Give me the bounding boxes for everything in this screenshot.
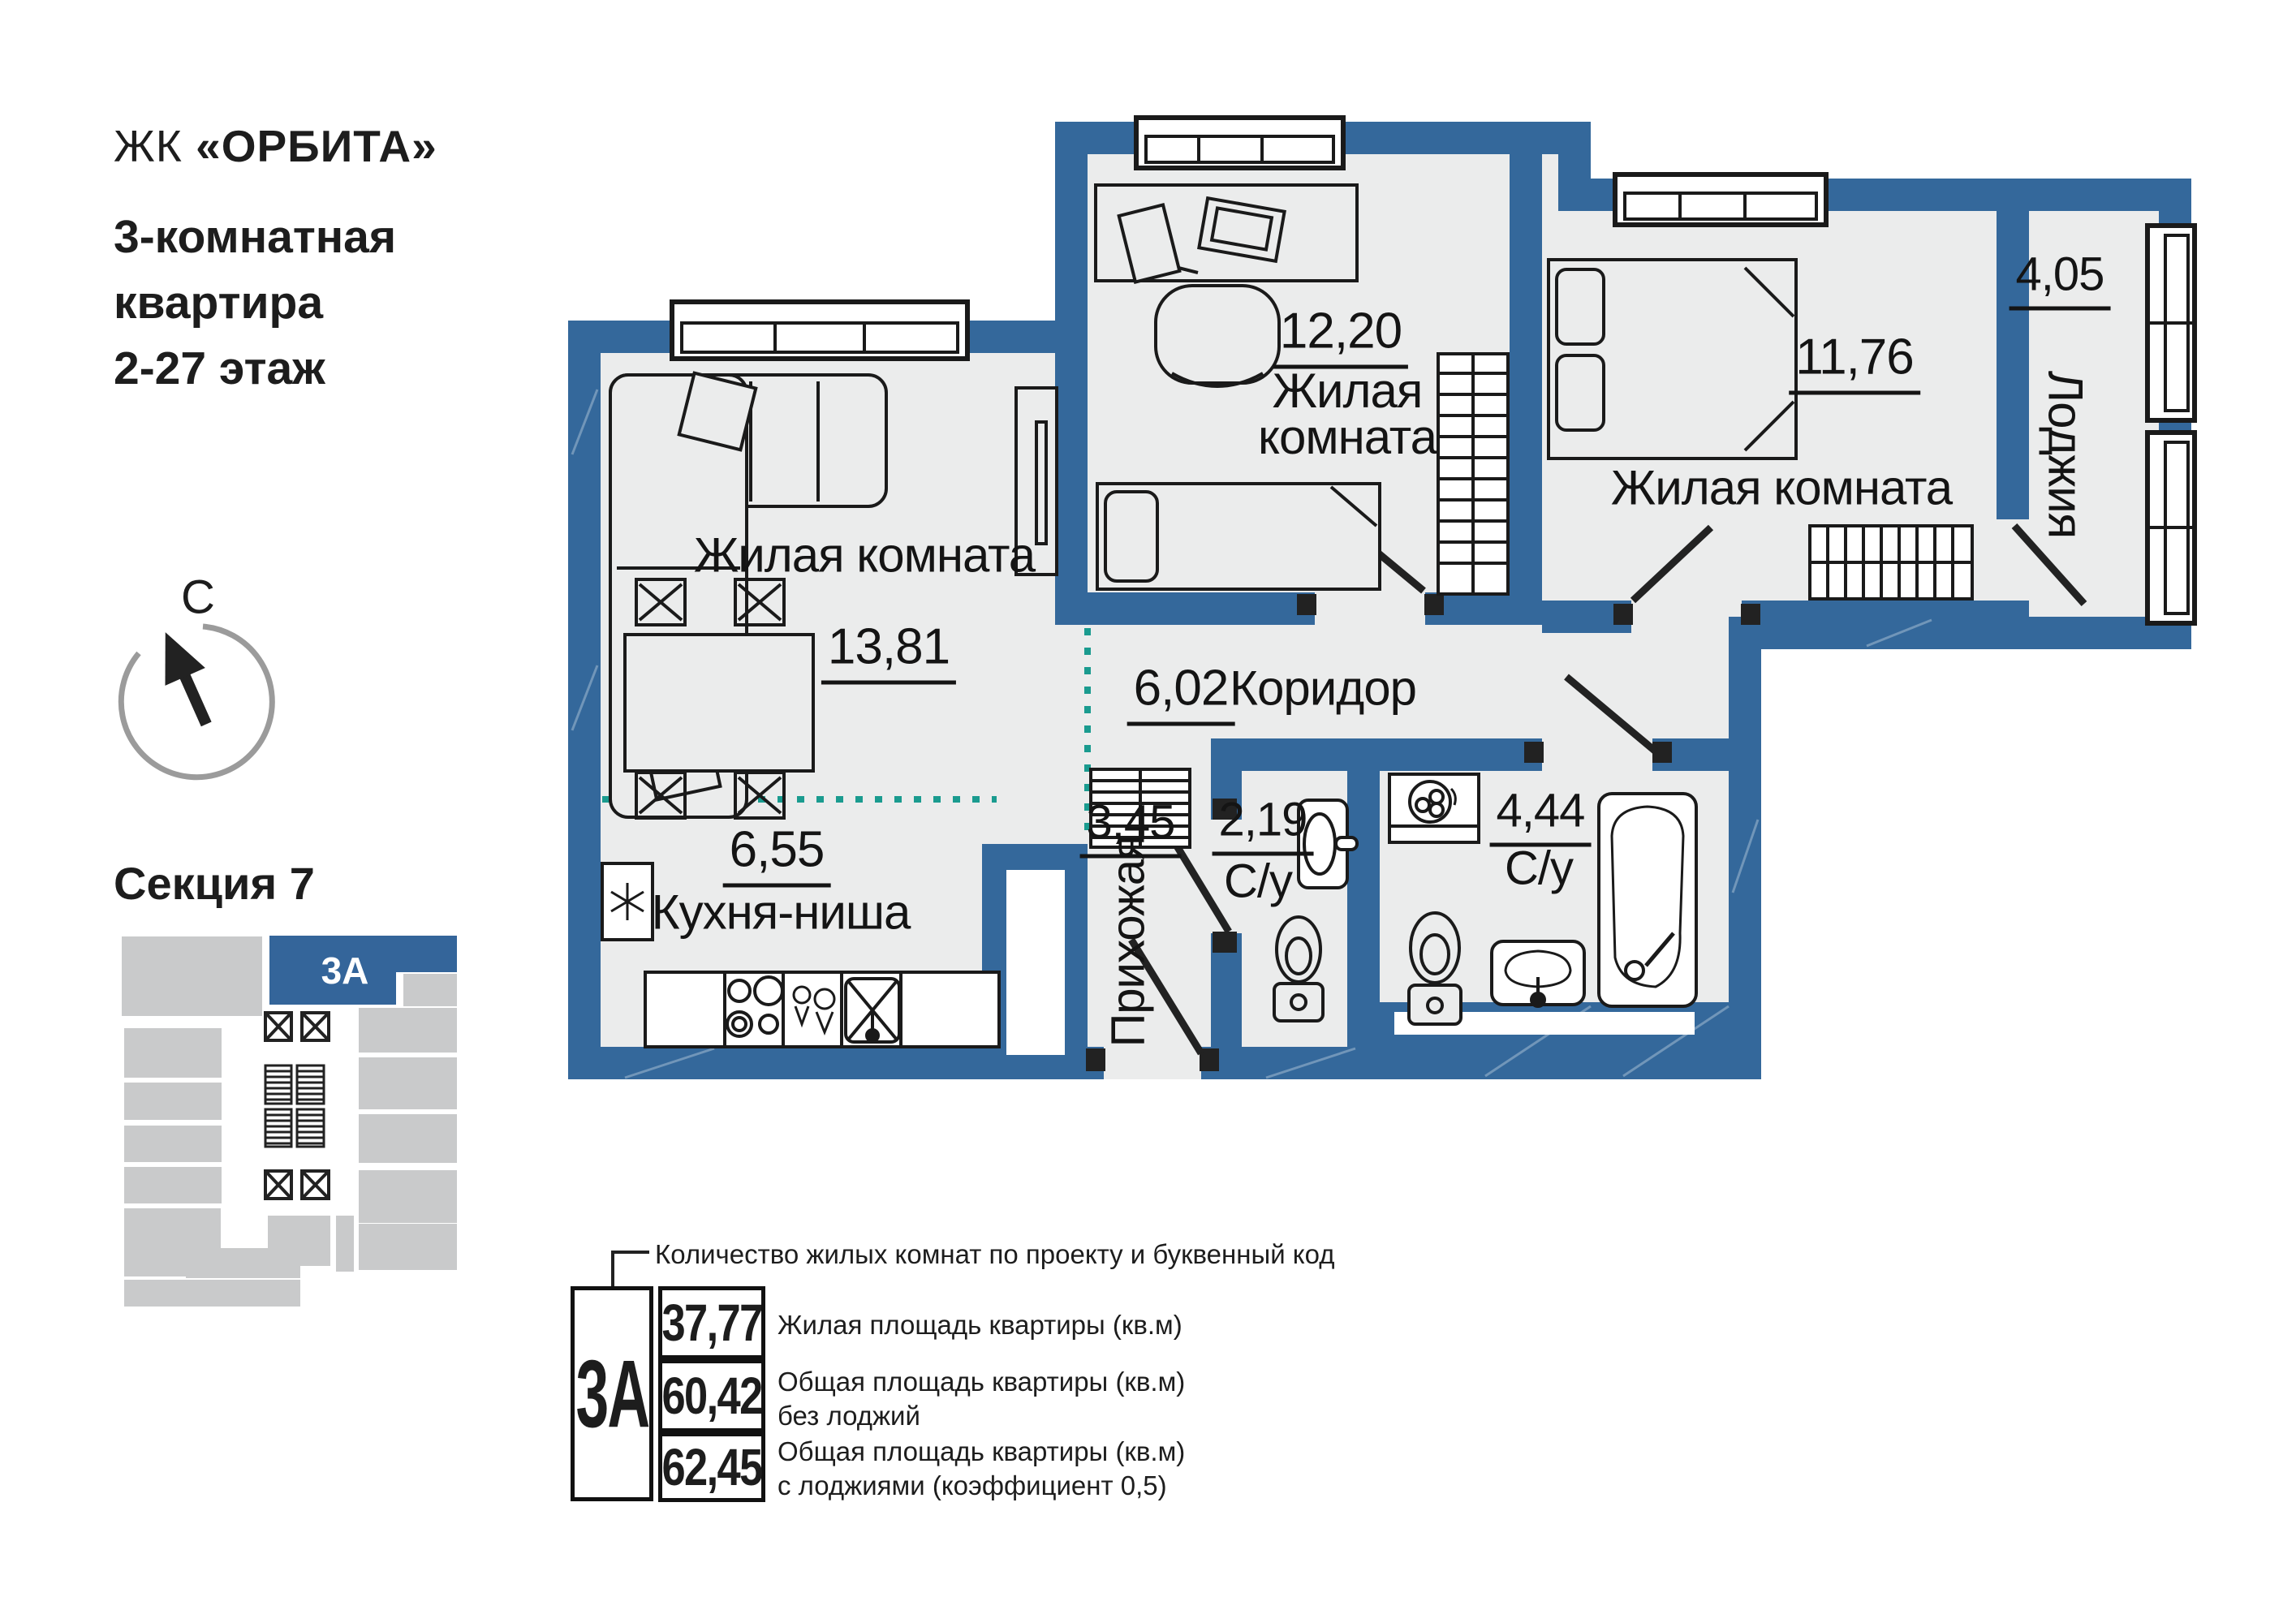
stairs-icon (265, 1065, 291, 1104)
room-label-living3: Жилая комната (1611, 460, 1952, 516)
subtitle-line: квартира (114, 270, 396, 336)
room-label-living1: Жилая комната (694, 527, 1035, 583)
room-area-living3: 11,76 (1789, 329, 1920, 386)
single-bed (1097, 484, 1380, 589)
legend-leader-line (613, 1252, 649, 1286)
desk (1096, 185, 1357, 282)
legend-description: Жилая площадь квартиры (кв.м) (778, 1308, 1182, 1342)
kitchen-counter (645, 972, 999, 1047)
poster: 3А ЖК «ОРБИТА» 3-комнатная квартира 2-27… (0, 0, 2296, 1623)
elevator-icon (265, 1171, 291, 1199)
toilet-big-bath (1409, 913, 1461, 1024)
elevator-icon (302, 1013, 329, 1040)
section-title: Секция 7 (114, 857, 315, 910)
window-living1 (672, 302, 967, 359)
complex-title: ЖК «ОРБИТА» (114, 120, 437, 172)
apartment-subtitle: 3-комнатная квартира 2-27 этаж (114, 204, 396, 402)
subtitle-line: 3-комнатная (114, 204, 396, 270)
elevator-icon (265, 1013, 291, 1040)
room-label-bath-big: С/у (1505, 842, 1573, 896)
room-area-bath-small: 2,19 (1213, 793, 1314, 847)
room-label-corridor: Коридор (1230, 661, 1416, 717)
washing-machine (1389, 774, 1479, 842)
minimap-stairs (265, 1065, 324, 1147)
stairs-icon (297, 1065, 324, 1104)
complex-title-name: «ОРБИТА» (196, 121, 437, 171)
toilet-small-bath (1274, 917, 1323, 1021)
room-label-bath-small: С/у (1224, 855, 1292, 909)
legend-unit-code-cell: 3А (571, 1286, 653, 1501)
room-area-living2: 12,20 (1273, 303, 1408, 360)
subtitle-line: 2-27 этаж (114, 336, 396, 402)
stairs-icon (265, 1109, 291, 1147)
double-bed (1549, 260, 1796, 458)
complex-title-prefix: ЖК (114, 121, 183, 171)
bathtub (1599, 794, 1696, 1006)
room-area-loggia: 4,05 (2010, 248, 2111, 302)
legend-value-cell: 60,42 (658, 1359, 765, 1432)
room-label-loggia: Лоджия (2038, 371, 2094, 539)
elevator-icon (302, 1171, 329, 1199)
compass-north-label: С (181, 570, 215, 625)
legend-description: Общая площадь квартиры (кв.м) без лоджий (778, 1365, 1185, 1433)
section-minimap: 3А (122, 936, 457, 1307)
window-loggia-lower (2147, 433, 2195, 623)
window-living2 (1136, 118, 1343, 168)
duct-shaft (1006, 870, 1065, 1055)
compass (121, 623, 272, 777)
room-area-living1: 13,81 (821, 618, 956, 676)
stairs-icon (297, 1109, 324, 1147)
north-arrow-icon (145, 623, 226, 733)
room-label-kitchen: Кухня-ниша (652, 885, 911, 941)
room-label-hallway: Прихожая (1101, 836, 1156, 1048)
minimap-elevators (265, 1013, 329, 1199)
room-area-corridor: 6,02 (1127, 660, 1235, 717)
fridge (602, 863, 653, 940)
legend-description: Общая площадь квартиры (кв.м) с лоджиями… (778, 1435, 1185, 1503)
wardrobe-bedroom2 (1810, 526, 1972, 599)
window-loggia-upper (2147, 226, 2195, 420)
sink-big-bath (1492, 941, 1584, 1006)
window-living3 (1615, 174, 1826, 225)
room-area-kitchen: 6,55 (723, 821, 831, 879)
room-area-bath-big: 4,44 (1490, 784, 1592, 838)
legend-value-cell: 62,45 (658, 1432, 765, 1502)
minimap-unit-3a-label: 3А (321, 949, 369, 992)
legend-callout: Количество жилых комнат по проекту и бук… (655, 1239, 1335, 1270)
legend-value-cell: 37,77 (658, 1286, 765, 1359)
room-label-living2: Жилая комната (1238, 368, 1457, 460)
